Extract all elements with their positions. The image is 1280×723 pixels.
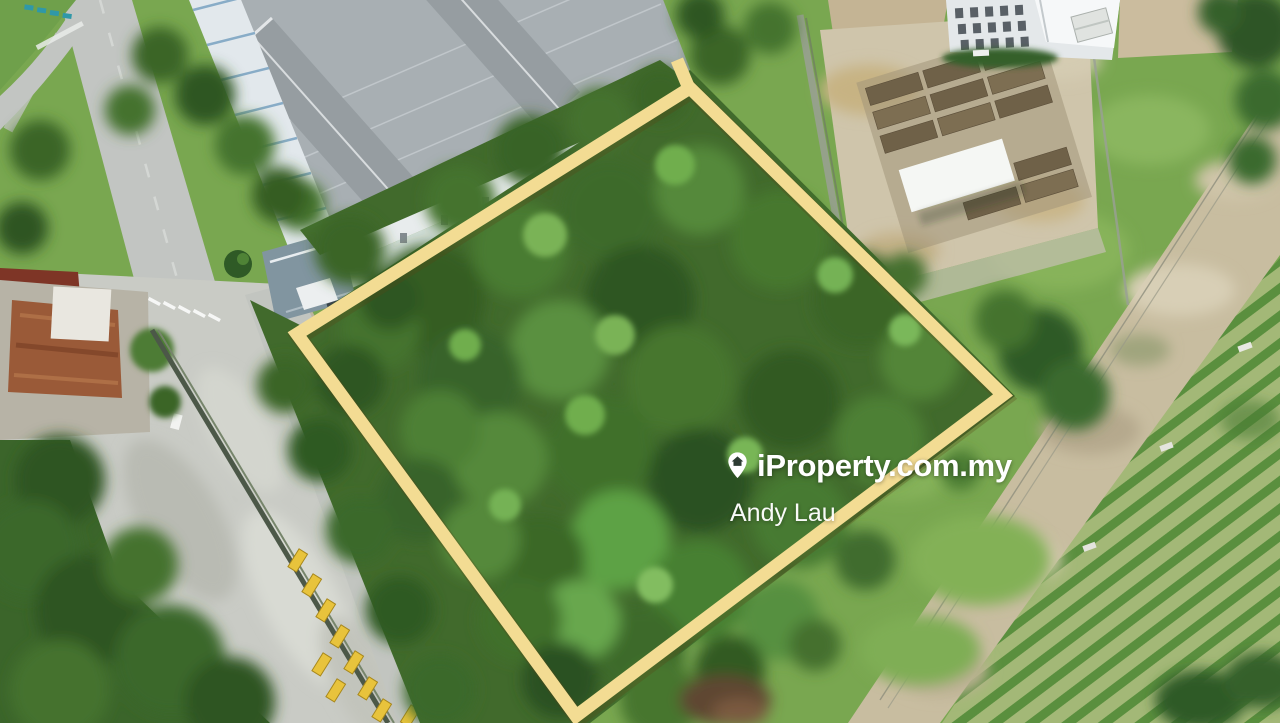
location-pin-house-icon [727,451,748,480]
apartment-building [942,0,1120,68]
brand-text: iProperty.com.my [757,450,1012,481]
aerial-scene [0,0,1280,723]
hedge [942,48,1058,68]
palm-tree [224,250,252,278]
aerial-photo: iProperty.com.my Andy Lau [0,0,1280,723]
agent-name: Andy Lau [730,501,1012,526]
brand-row: iProperty.com.my [727,450,1012,481]
watermark: iProperty.com.my Andy Lau [727,450,1012,526]
